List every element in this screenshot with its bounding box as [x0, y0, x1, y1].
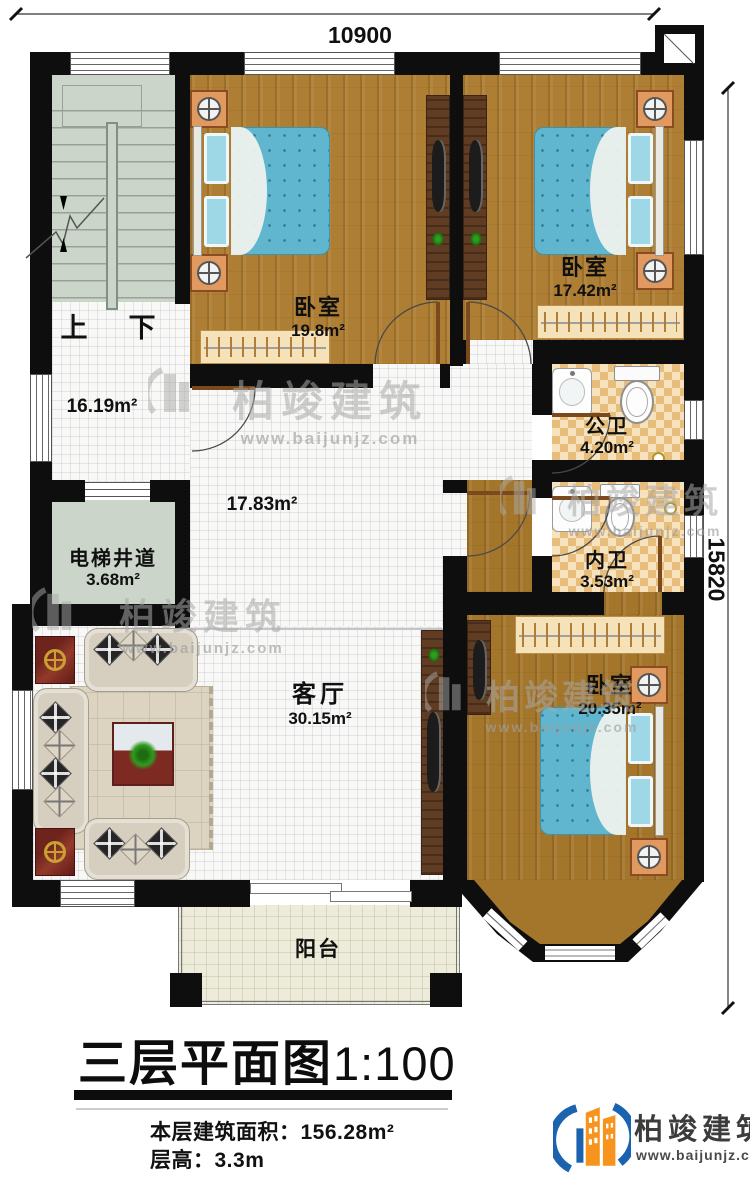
- floor-area-label: 本层建筑面积：: [150, 1121, 301, 1144]
- balcony-post: [170, 973, 202, 1007]
- bedroom3-name: 卧室: [530, 674, 690, 699]
- stairs-down-label: 下: [122, 306, 162, 345]
- sheet-title: 三层平面图1:100: [78, 1024, 456, 1095]
- wall-left-upper: [30, 52, 52, 622]
- sink-ensuite-bath: [552, 486, 592, 532]
- room-label-hall: 16.19m²: [42, 396, 162, 417]
- brand-name: 柏竣建筑: [634, 1106, 750, 1148]
- room-label-corridor: 17.83m²: [202, 494, 322, 515]
- room-label-ensuite-bath: 内卫 3.53m²: [547, 550, 667, 591]
- floor-height-value: 3.3m: [215, 1149, 265, 1172]
- room-label-bedroom3: 卧室 20.35m²: [530, 674, 690, 718]
- bay-window-floor: [474, 880, 682, 944]
- bed-bedroom3: [540, 706, 664, 836]
- wall-elevator-north: [30, 480, 85, 502]
- nightstand: [190, 90, 228, 128]
- balcony-post: [430, 973, 462, 1007]
- room-label-balcony: 阳台: [248, 938, 388, 962]
- bed-bedroom1: [193, 126, 330, 256]
- window-top-bedroom2: [499, 52, 641, 75]
- window-left-hall: [30, 374, 52, 462]
- wall-ensuite-south: [443, 592, 604, 615]
- toilet-tank-public: [614, 366, 660, 381]
- living-name: 客厅: [250, 682, 390, 709]
- ensuite-door-threshold: [604, 592, 662, 615]
- sliding-door-panel: [250, 883, 342, 894]
- wall-bottom: [135, 880, 250, 907]
- bedroom1-name: 卧室: [238, 296, 398, 321]
- dimension-width: 10900: [310, 22, 410, 49]
- tv-bedroom2: [469, 140, 481, 212]
- wardrobe-bedroom3: [515, 616, 665, 654]
- plant-icon: [470, 232, 482, 246]
- wall-stairwell: [175, 52, 190, 304]
- public-bath-area: 4.20m²: [547, 438, 667, 457]
- elevator-door: [85, 482, 150, 500]
- window-right-ensuite-bath: [684, 515, 704, 558]
- wall-bedroom2-south: [533, 340, 684, 364]
- toilet-tank-ensuite: [600, 484, 640, 498]
- floor-area-line: 本层建筑面积：156.28m²: [150, 1116, 394, 1146]
- toilet-ensuite-bath: [605, 497, 635, 537]
- nightstand: [630, 838, 668, 876]
- wall-elevator-north: [150, 480, 175, 502]
- floor-height-line: 层高：3.3m: [150, 1144, 264, 1174]
- window-top-bedroom1: [244, 52, 395, 75]
- window-right-public-bath: [684, 400, 704, 440]
- window-right-bedroom2: [684, 140, 704, 255]
- bedroom2-door-threshold: [468, 340, 533, 364]
- bedroom1-area: 19.8m²: [238, 321, 398, 340]
- plant-icon: [428, 648, 440, 662]
- shower-fixture-icon: [664, 502, 677, 515]
- sliding-door-panel: [330, 891, 412, 902]
- end-table-lamp: [35, 828, 75, 876]
- wall-bedroom2-south: [463, 340, 468, 364]
- window-left-living: [12, 690, 33, 790]
- bedroom2-area: 17.42m²: [505, 281, 665, 300]
- sink-public-bath: [552, 368, 592, 416]
- stairs-up-label: 上: [54, 306, 94, 345]
- balcony-name: 阳台: [248, 938, 388, 962]
- watermark-logo-icon: [425, 666, 465, 718]
- bed-bedroom2: [534, 126, 664, 256]
- watermark-logo-icon: [500, 470, 540, 522]
- stair-railing: [106, 122, 118, 310]
- wall-bedroom1-south: [190, 364, 373, 388]
- sheet-scale: 1:100: [333, 1037, 456, 1090]
- stair-landing: [62, 85, 142, 127]
- wall-bottom: [410, 880, 462, 907]
- room-label-bedroom1: 卧室 19.8m²: [238, 296, 398, 340]
- floor-plan-sheet: 卧室 19.8m² 卧室 17.42m² 卧室 20.35m² 公卫 4.20m…: [0, 0, 750, 1182]
- ensuite-bath-name: 内卫: [547, 550, 667, 572]
- sheet-title-text: 三层平面图: [78, 1037, 333, 1091]
- wall-bedroom3-west: [443, 556, 467, 880]
- window-top-stairwell: [70, 52, 170, 75]
- wall-bottom: [12, 880, 60, 907]
- wall-ensuite-south: [662, 592, 704, 615]
- bedroom3-area: 20.35m²: [530, 699, 690, 718]
- floor-height-label: 层高：: [150, 1149, 215, 1172]
- wall-bath-divider: [532, 460, 704, 482]
- end-table-lamp: [35, 636, 75, 684]
- room-label-public-bath: 公卫 4.20m²: [547, 416, 667, 457]
- hall-area: 16.19m²: [42, 396, 162, 417]
- wall-bedroom1-south: [440, 364, 450, 388]
- brand-logo-icon: [553, 1094, 631, 1176]
- dimension-height: 15820: [703, 530, 730, 610]
- title-underline-thin: [76, 1108, 448, 1110]
- nightstand: [190, 254, 228, 292]
- room-label-living: 客厅 30.15m²: [250, 682, 390, 728]
- corridor-area: 17.83m²: [202, 494, 322, 515]
- watermark-logo-icon: [148, 362, 194, 420]
- tv-living: [427, 712, 439, 792]
- room-label-bedroom2: 卧室 17.42m²: [505, 256, 665, 300]
- threshold-line: [190, 628, 445, 630]
- brand-website: www.baijunjz.com: [636, 1147, 750, 1163]
- wall-between-bedrooms: [450, 52, 463, 366]
- wall-bedroom3-west: [443, 480, 467, 493]
- title-underline-bar: [74, 1090, 452, 1100]
- bay-window-frame: [450, 880, 704, 962]
- living-area: 30.15m²: [250, 709, 390, 728]
- elevator-name: 电梯井道: [43, 548, 183, 570]
- wall-bath-west: [532, 364, 552, 415]
- public-bath-name: 公卫: [547, 416, 667, 438]
- tv-bedroom3: [473, 640, 485, 700]
- plant-icon: [432, 232, 444, 246]
- watermark-logo-icon: [32, 582, 76, 638]
- tv-bedroom1: [432, 140, 444, 212]
- window-bottom-living: [60, 880, 135, 907]
- nightstand: [636, 90, 674, 128]
- corner-flue-symbol: [655, 25, 704, 72]
- bedroom2-name: 卧室: [505, 256, 665, 281]
- ensuite-bath-area: 3.53m²: [547, 572, 667, 591]
- wardrobe-bedroom2: [537, 305, 684, 339]
- floor-area-value: 156.28m²: [301, 1121, 395, 1144]
